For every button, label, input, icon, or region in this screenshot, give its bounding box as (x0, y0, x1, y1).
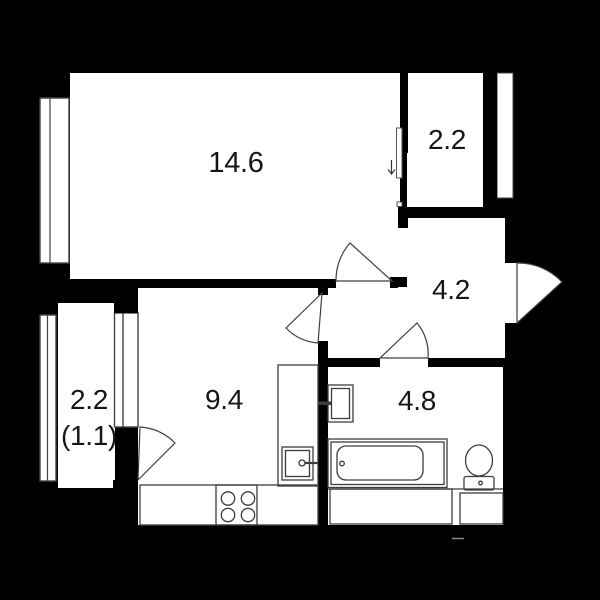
floor-plan: 14.6 2.2 4.2 9.4 4.8 2.2 (1.1) (0, 0, 600, 600)
floor-plan-canvas: 14.6 2.2 4.2 9.4 4.8 2.2 (1.1) (0, 0, 600, 600)
wall-wardrobe-stub (398, 207, 408, 228)
washbasin-tap (318, 402, 331, 406)
wall-kitchen-bathroom (318, 358, 328, 525)
sliding-door-leaf (397, 128, 403, 178)
balcony-area-label: 2.2 (70, 384, 108, 415)
balcony-reduced-area-label: (1.1) (61, 420, 117, 451)
wall-wardrobe-right (483, 73, 497, 207)
wall-bathroom-top-east (428, 358, 517, 367)
opening-bathroom-door (380, 358, 428, 367)
vent-shaft (497, 73, 513, 198)
wall-bathroom-top-west (318, 358, 380, 367)
hallway-area-label: 4.2 (432, 274, 470, 305)
kitchen-area-label: 9.4 (205, 384, 243, 415)
living-room-area-label: 14.6 (208, 147, 263, 179)
wall-wardrobe-bottom (398, 207, 497, 218)
wall-living-door-stub (390, 277, 407, 287)
floor-hallway-west (328, 288, 398, 358)
wall-kitchen-door-stub-bottom (318, 341, 328, 358)
wall-living-south (40, 279, 336, 288)
sliding-door-track-end (397, 202, 402, 207)
living-room-window (40, 98, 69, 263)
wall-balcony-top (40, 288, 115, 303)
wardrobe-area-label: 2.2 (428, 124, 466, 155)
wall-balcony-bottom-stub (113, 480, 138, 488)
opening-entry-door (505, 263, 517, 323)
bathroom-area-label: 4.8 (398, 385, 436, 416)
wall-balcony-partition-top (114, 288, 138, 313)
balcony-glazing (115, 313, 139, 427)
wall-kitchen-door-stub-top (318, 279, 328, 295)
